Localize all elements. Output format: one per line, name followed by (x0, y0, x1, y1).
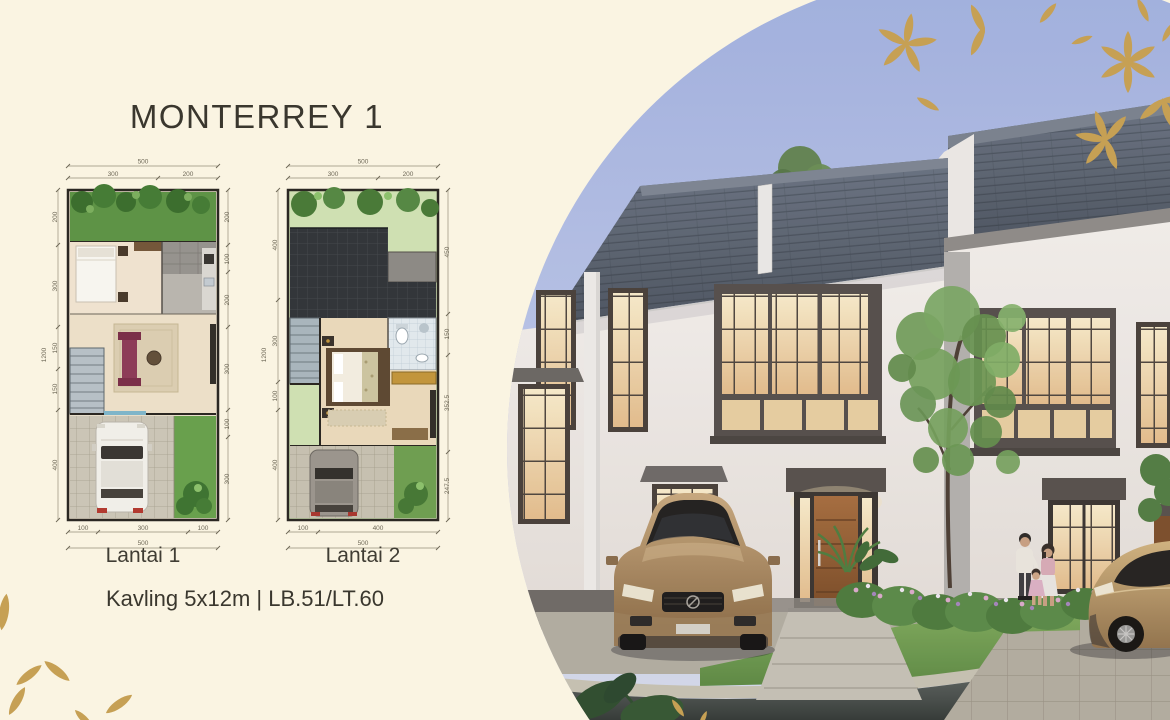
svg-text:352.5: 352.5 (444, 394, 451, 411)
svg-text:500: 500 (358, 159, 369, 166)
svg-text:400: 400 (52, 459, 59, 470)
svg-text:150: 150 (52, 342, 59, 353)
tv-console (210, 324, 216, 384)
wardrobe (392, 372, 436, 384)
bed (326, 348, 390, 406)
svg-text:400: 400 (272, 459, 279, 470)
floorplan-lantai-1: 500 300 200 1200 200 300 150 150 400 200… (38, 156, 238, 566)
garden-strip (70, 184, 216, 242)
svg-text:450: 450 (444, 246, 451, 257)
plan1-body (68, 184, 218, 520)
svg-text:1200: 1200 (261, 347, 268, 362)
svg-text:200: 200 (224, 211, 231, 222)
svg-text:100: 100 (78, 525, 89, 532)
svg-text:200: 200 (403, 171, 414, 178)
side-garden (394, 446, 436, 518)
stairs (70, 348, 104, 414)
floorplan-label-1: Lantai 1 (63, 544, 223, 568)
svg-text:300: 300 (108, 171, 119, 178)
floorplan-label-2: Lantai 2 (283, 544, 443, 568)
carport (70, 416, 174, 518)
svg-text:300: 300 (224, 473, 231, 484)
glass-door (104, 411, 146, 415)
dims-top: 500 300 200 (286, 159, 440, 181)
tv-console (430, 390, 436, 438)
svg-text:300: 300 (328, 171, 339, 178)
svg-text:100: 100 (224, 418, 231, 429)
petal-cluster-bottom-left (0, 593, 134, 720)
bathroom (388, 318, 436, 370)
lot-spec: Kavling 5x12m | LB.51/LT.60 (50, 586, 440, 612)
page-title: MONTERREY 1 (92, 98, 422, 136)
svg-text:300: 300 (52, 280, 59, 291)
floorplan-lantai-2: 500 300 200 1200 400 300 100 400 450 150… (258, 156, 458, 566)
car-topview (310, 450, 358, 516)
svg-text:100: 100 (272, 390, 279, 401)
dims-top: 500 300 200 (66, 159, 220, 181)
svg-text:300: 300 (272, 335, 279, 346)
svg-text:300: 300 (224, 363, 231, 374)
house-photo (507, 0, 1170, 720)
svg-text:400: 400 (272, 239, 279, 250)
svg-text:100: 100 (298, 525, 309, 532)
house-scene-svg (507, 0, 1170, 720)
svg-text:300: 300 (138, 525, 149, 532)
svg-text:247.5: 247.5 (444, 477, 451, 494)
dims-right: 200 100 200 300 100 300 (224, 188, 231, 522)
svg-text:400: 400 (373, 525, 384, 532)
svg-text:100: 100 (224, 253, 231, 264)
brochure-page: MONTERREY 1 500 300 200 1200 200 300 150… (0, 0, 1170, 720)
side-garden (174, 416, 216, 518)
svg-text:200: 200 (183, 171, 194, 178)
svg-text:200: 200 (52, 211, 59, 222)
sofa (122, 336, 137, 382)
svg-text:150: 150 (52, 383, 59, 394)
house-photo-scene (507, 0, 1170, 720)
dims-right: 450 150 352.5 247.5 (444, 188, 451, 522)
carport-below (290, 446, 394, 518)
svg-text:150: 150 (444, 328, 451, 339)
dims-left: 1200 200 300 150 150 400 (41, 188, 60, 522)
svg-text:1200: 1200 (41, 347, 48, 362)
stairs (290, 318, 320, 384)
dims-left: 1200 400 300 100 400 (261, 188, 280, 522)
car-topview (92, 422, 152, 513)
flat-roof-deck (388, 252, 436, 282)
kitchen (162, 242, 216, 314)
bench (392, 428, 428, 440)
svg-text:100: 100 (198, 525, 209, 532)
svg-text:200: 200 (224, 294, 231, 305)
plan2-body (288, 187, 439, 520)
bedroom (70, 242, 162, 314)
svg-text:500: 500 (138, 159, 149, 166)
dusk-haze (507, 0, 1170, 720)
